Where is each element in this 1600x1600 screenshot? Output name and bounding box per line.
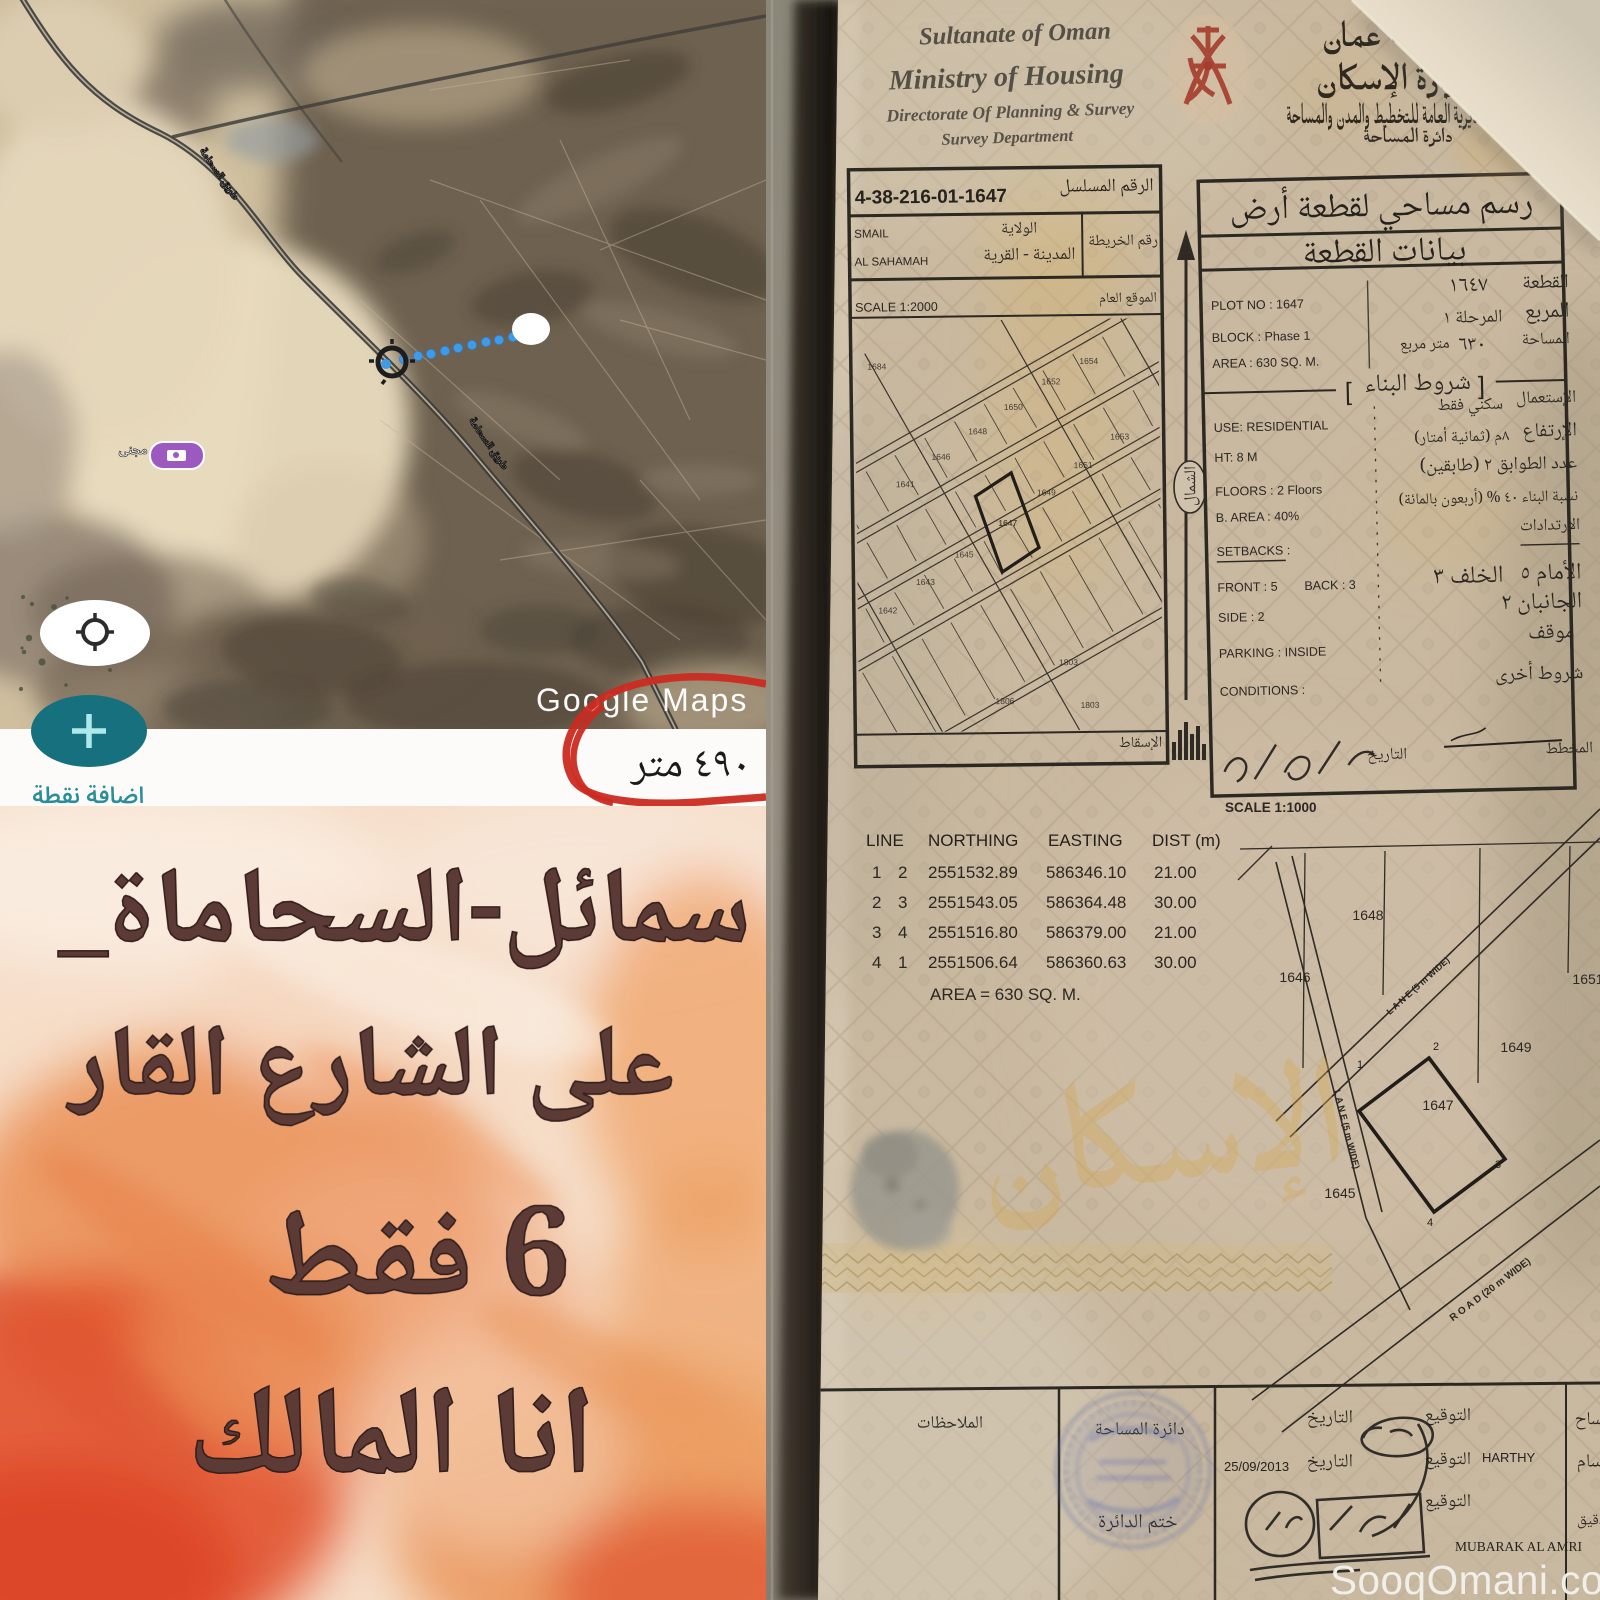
svg-text:1647: 1647	[1422, 1097, 1453, 1113]
svg-text:1654: 1654	[1079, 356, 1098, 366]
svg-text:LINE: LINE	[866, 831, 904, 850]
svg-text:3: 3	[1495, 1159, 1501, 1171]
svg-text:1803: 1803	[1080, 700, 1099, 710]
svg-text:HARTHY: HARTHY	[1482, 1450, 1536, 1465]
svg-text:586360.63: 586360.63	[1046, 953, 1126, 972]
svg-text:1684: 1684	[867, 361, 886, 371]
svg-text:AL SAHAMAH: AL SAHAMAH	[855, 256, 929, 269]
svg-text:1643: 1643	[916, 577, 935, 587]
svg-text:FLOORS : 2 Floors: FLOORS : 2 Floors	[1215, 483, 1322, 499]
svg-text:PARKING : INSIDE: PARKING : INSIDE	[1219, 644, 1327, 660]
svg-text:1803: 1803	[1059, 657, 1078, 667]
svg-text:NORTHING: NORTHING	[928, 831, 1018, 850]
svg-text:HT: 8 M: HT: 8 M	[1214, 450, 1257, 465]
svg-text:FRONT : 5: FRONT : 5	[1217, 580, 1278, 595]
svg-text:]: ]	[1478, 372, 1486, 400]
svg-text:1647: 1647	[998, 518, 1017, 528]
svg-text:1641: 1641	[896, 479, 915, 489]
svg-text:3: 3	[898, 893, 907, 912]
svg-text:21.00: 21.00	[1154, 863, 1197, 882]
svg-text:BACK : 3: BACK : 3	[1304, 578, 1356, 593]
svg-text:1649: 1649	[1037, 487, 1056, 497]
svg-text:DIST (m): DIST (m)	[1152, 831, 1221, 850]
svg-text:1648: 1648	[968, 426, 987, 436]
svg-text:1651: 1651	[1572, 971, 1600, 987]
svg-text:1: 1	[1357, 1059, 1363, 1071]
svg-text:MUBARAK AL AMRI: MUBARAK AL AMRI	[1455, 1539, 1583, 1554]
svg-text:1: 1	[872, 863, 881, 882]
svg-text:25/09/2013: 25/09/2013	[1224, 1459, 1289, 1474]
svg-text:SCALE 1:2000: SCALE 1:2000	[855, 300, 938, 315]
svg-text:AREA = 630 SQ. M.: AREA = 630 SQ. M.	[930, 985, 1081, 1004]
svg-text:PLOT NO : 1647: PLOT NO : 1647	[1211, 297, 1304, 313]
svg-text:BLOCK : Phase 1: BLOCK : Phase 1	[1212, 329, 1311, 345]
svg-text:4: 4	[872, 953, 881, 972]
svg-text:1650: 1650	[1004, 402, 1023, 412]
svg-text:2551532.89: 2551532.89	[928, 863, 1018, 882]
svg-text:SIDE : 2: SIDE : 2	[1218, 610, 1265, 625]
svg-text:1642: 1642	[878, 605, 897, 615]
svg-text:CONDITIONS :: CONDITIONS :	[1220, 683, 1306, 699]
svg-text:1: 1	[898, 953, 907, 972]
svg-text:2551516.80: 2551516.80	[928, 923, 1018, 942]
svg-text:USE: RESIDENTIAL: USE: RESIDENTIAL	[1214, 418, 1329, 435]
svg-text:1648: 1648	[1352, 907, 1383, 923]
svg-text:4: 4	[898, 923, 907, 942]
svg-text:586364.48: 586364.48	[1046, 893, 1126, 912]
svg-text:SMAIL: SMAIL	[854, 228, 889, 240]
svg-text:21.00: 21.00	[1154, 923, 1197, 942]
svg-text:SCALE 1:1000: SCALE 1:1000	[1225, 800, 1317, 815]
svg-text:1651: 1651	[1074, 460, 1093, 470]
svg-text:30.00: 30.00	[1154, 953, 1197, 972]
svg-text:2551506.64: 2551506.64	[928, 953, 1018, 972]
svg-text:1646: 1646	[931, 452, 950, 462]
svg-text:[: [	[1345, 378, 1353, 406]
svg-text:2551543.05: 2551543.05	[928, 893, 1018, 912]
svg-text:2: 2	[872, 893, 881, 912]
svg-text:586346.10: 586346.10	[1046, 863, 1126, 882]
svg-text:1649: 1649	[1500, 1039, 1531, 1055]
svg-text:AREA : 630 SQ. M.: AREA : 630 SQ. M.	[1212, 355, 1319, 371]
svg-text:B. AREA : 40%: B. AREA : 40%	[1216, 509, 1300, 525]
svg-text:586379.00: 586379.00	[1046, 923, 1126, 942]
svg-text:1646: 1646	[1279, 969, 1310, 985]
svg-text:SooqOmani.com: SooqOmani.com	[1330, 1557, 1600, 1600]
svg-text:SETBACKS :: SETBACKS :	[1216, 543, 1290, 559]
svg-text:2: 2	[1433, 1041, 1439, 1053]
svg-text:1806: 1806	[995, 696, 1014, 706]
svg-text:30.00: 30.00	[1154, 893, 1197, 912]
svg-text:4: 4	[1427, 1217, 1433, 1229]
svg-text:4-38-216-01-1647: 4-38-216-01-1647	[855, 186, 1007, 209]
svg-text:1653: 1653	[1110, 431, 1129, 441]
svg-text:1652: 1652	[1042, 376, 1061, 386]
svg-text:1645: 1645	[955, 549, 974, 559]
svg-text:EASTING: EASTING	[1048, 831, 1123, 850]
svg-text:1645: 1645	[1324, 1185, 1355, 1201]
svg-text:3: 3	[872, 923, 881, 942]
svg-text:2: 2	[898, 863, 907, 882]
